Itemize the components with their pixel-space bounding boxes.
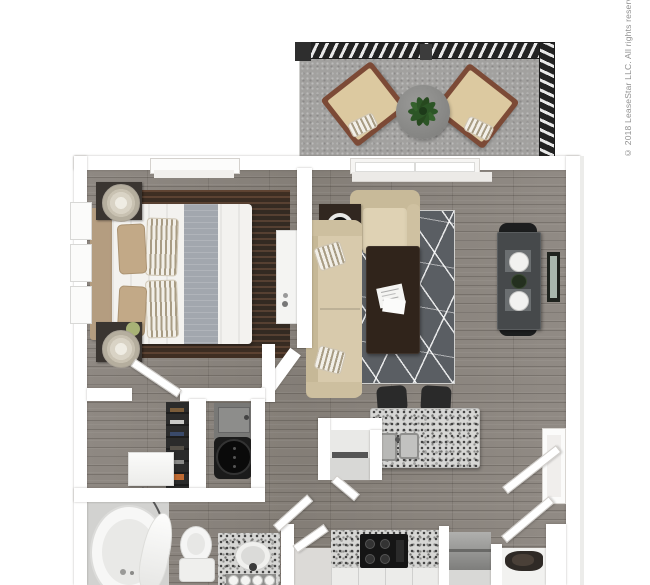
bedroom-left-window-3 — [70, 286, 92, 324]
wall-right-shadow — [580, 156, 584, 585]
hall-passage-floor — [293, 548, 331, 585]
pantry-wall-left — [318, 418, 330, 480]
kitchen-cabinets-bottom — [331, 568, 439, 585]
floor-plan-canvas: { "meta": { "copyright": "© 2018 LeaseSt… — [0, 0, 650, 585]
bedroom-top-window-sill — [154, 170, 234, 178]
wall-closet-divider — [189, 399, 206, 490]
wall-bedroom-right — [297, 168, 312, 348]
lamp-top — [102, 184, 140, 222]
balcony-post-left — [295, 42, 311, 61]
bed-pillow-tan-1 — [117, 223, 148, 274]
wall-bedroom-bottom-a — [87, 388, 132, 401]
bed-runner-blanket — [184, 204, 218, 344]
vanity-faucet — [249, 563, 257, 571]
washer-knob — [244, 415, 249, 420]
entry-door-frame — [542, 428, 566, 504]
coffee-table-paper — [382, 298, 406, 315]
wall-mirror — [547, 252, 560, 302]
vanity-bulb-2 — [240, 575, 251, 585]
dinner-plate-1 — [509, 252, 529, 272]
wall-kitchen-stub-1 — [439, 526, 449, 585]
pantry-interior — [330, 430, 370, 480]
bedroom-left-window-2 — [70, 244, 92, 282]
toilet-tank — [179, 558, 215, 582]
pantry-wall-right — [370, 430, 382, 480]
washer-top — [214, 403, 252, 439]
dinner-plate-2 — [509, 291, 529, 311]
refrigerator — [449, 532, 491, 570]
kitchen-range — [360, 534, 408, 568]
coat-closet-interior — [502, 548, 546, 585]
island-faucet — [395, 437, 400, 442]
dryer-drum — [216, 439, 252, 475]
sofa — [306, 220, 362, 398]
table-centerpiece — [511, 274, 527, 289]
balcony-railing-right — [539, 42, 555, 162]
balcony-post-middle — [420, 44, 432, 60]
bed-headboard — [90, 208, 114, 340]
balcony-plant — [404, 93, 442, 131]
wall-bathroom-top — [74, 488, 265, 502]
wall-laundry-right — [251, 399, 265, 490]
fridge-cabinet — [449, 570, 491, 585]
vanity-bulb-1 — [228, 575, 239, 585]
dresser-decor-2 — [282, 301, 288, 307]
wall-outer-right — [566, 156, 580, 585]
vanity-bulb-3 — [252, 575, 263, 585]
wall-entry-closet — [546, 524, 566, 585]
island-sink-2 — [399, 433, 419, 459]
bed-pillow-white-1 — [145, 217, 179, 276]
wall-bathroom-right — [281, 524, 294, 585]
wall-kitchen-stub-2 — [491, 544, 502, 585]
bedroom-left-window-1 — [70, 202, 92, 240]
vanity-bulb-4 — [264, 575, 275, 585]
dresser-decor-1 — [283, 293, 288, 298]
bed-pillow-white-2 — [145, 279, 179, 338]
copyright-text: © 2018 LeaseStar LLC. All rights reserve… — [623, 8, 639, 158]
sliding-door-sill — [352, 172, 492, 182]
